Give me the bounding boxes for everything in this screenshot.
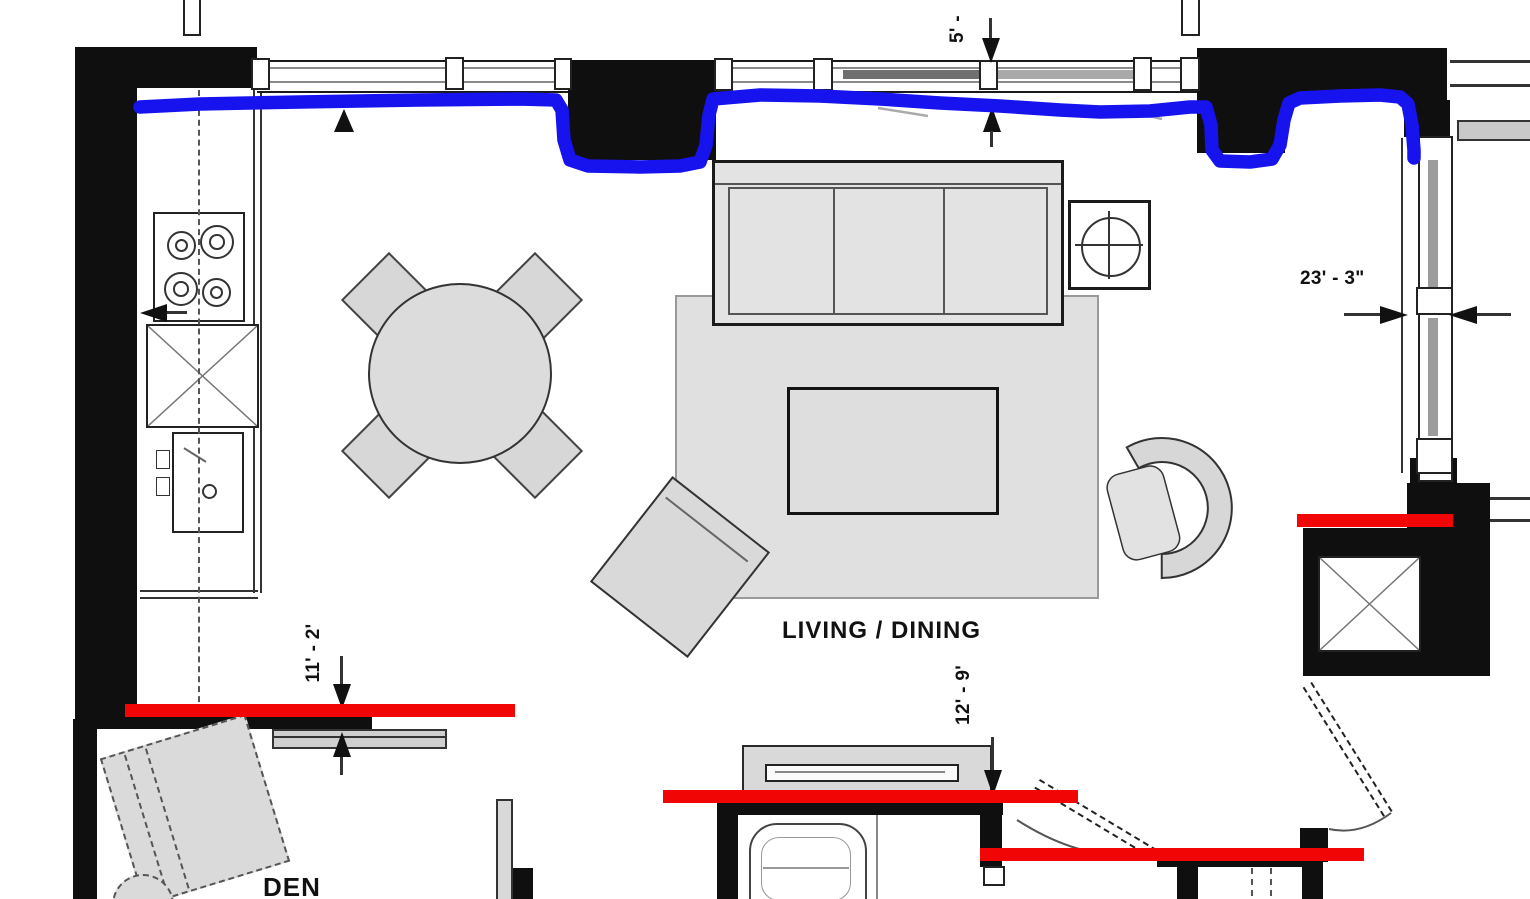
red-annotation-line-3 bbox=[663, 790, 1078, 803]
plan-linework bbox=[0, 0, 1530, 899]
dimension-arrow-down bbox=[982, 38, 1000, 63]
dimension-stem bbox=[167, 311, 187, 314]
dimension-stem bbox=[989, 18, 992, 38]
dimension-arrow-left bbox=[1449, 306, 1477, 324]
red-annotation-line-2 bbox=[1297, 514, 1453, 527]
window-tick-arrow-up bbox=[334, 109, 354, 132]
dimension-stem bbox=[991, 737, 994, 770]
dimension-stem bbox=[340, 757, 343, 775]
dimension-arrow-up bbox=[983, 107, 1001, 132]
dimension-stem bbox=[1477, 313, 1511, 316]
room-label-living-dining: LIVING / DINING bbox=[782, 617, 981, 645]
dimension-stem bbox=[340, 656, 343, 684]
dimension-label-right-window: 23' - 3" bbox=[1300, 268, 1365, 290]
dimension-stem bbox=[1344, 313, 1380, 316]
stray-pencil-mark-1 bbox=[878, 108, 928, 116]
dimension-arrow-up bbox=[333, 732, 351, 757]
wall-arrow-left bbox=[140, 304, 167, 322]
red-annotation-line-1 bbox=[125, 704, 515, 717]
dimension-stem bbox=[990, 131, 993, 147]
dimension-label-kitchen-den: 11' - 2' bbox=[303, 599, 329, 707]
red-annotation-line-4 bbox=[980, 848, 1364, 861]
stray-pencil-mark-2 bbox=[1128, 111, 1162, 119]
dimension-arrow-right bbox=[1380, 306, 1408, 324]
room-label-den: DEN bbox=[263, 872, 321, 899]
dimension-label-top-window: 5' - bbox=[947, 0, 973, 43]
dimension-label-living: 12' - 9' bbox=[953, 641, 979, 749]
floor-plan: 5' - 23' - 3" 11' - 2' 12' - 9' LIVING /… bbox=[0, 0, 1530, 899]
